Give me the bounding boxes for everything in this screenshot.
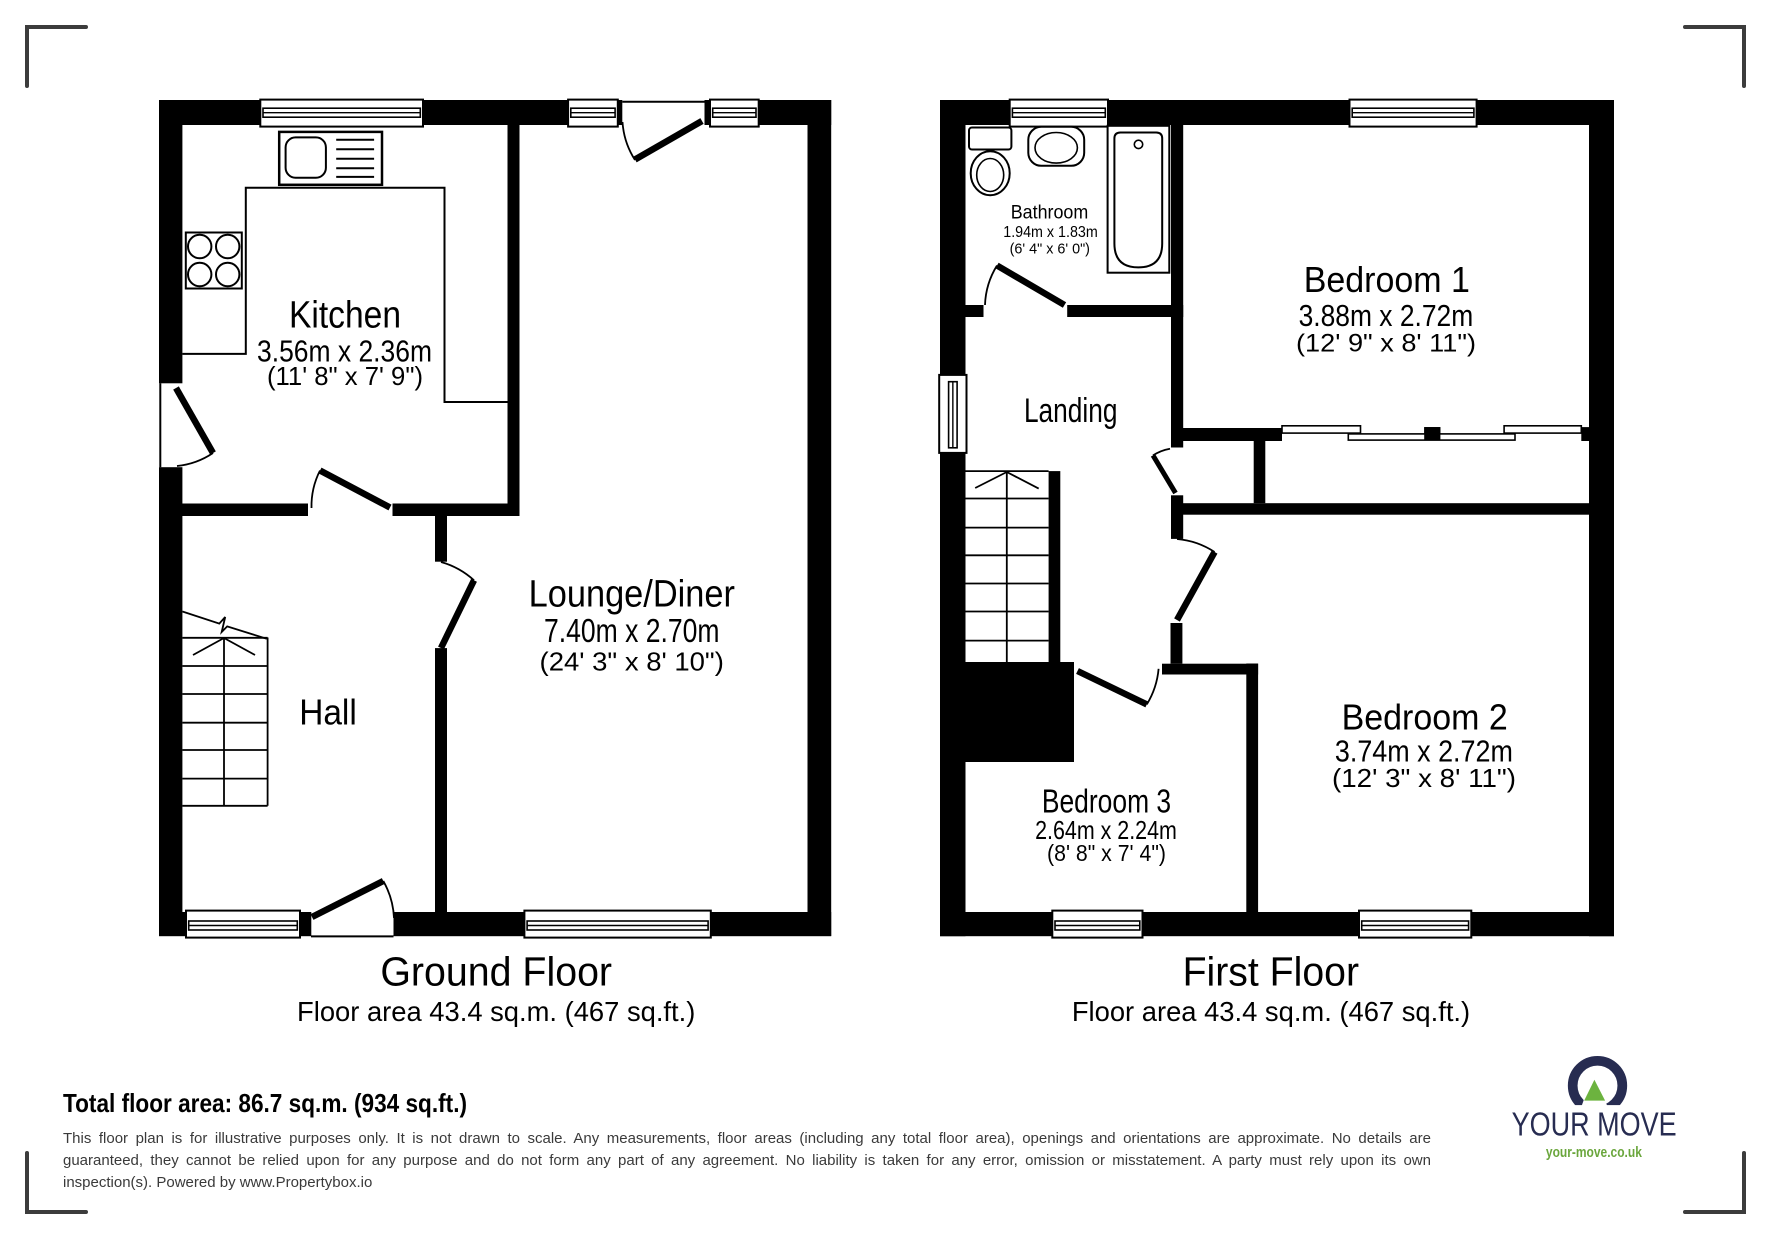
svg-text:First Floor: First Floor: [1183, 949, 1359, 995]
svg-text:(12' 3" x 8' 11"): (12' 3" x 8' 11"): [1332, 763, 1516, 793]
svg-text:Bedroom 2: Bedroom 2: [1342, 697, 1508, 738]
svg-text:Landing: Landing: [1024, 392, 1118, 430]
svg-text:Kitchen: Kitchen: [289, 295, 401, 337]
svg-text:7.40m x 2.70m: 7.40m x 2.70m: [544, 612, 720, 649]
svg-text:Ground Floor: Ground Floor: [380, 949, 612, 995]
svg-text:Bedroom 1: Bedroom 1: [1304, 259, 1470, 300]
svg-text:Total floor area: 86.7 sq.m. (: Total floor area: 86.7 sq.m. (934 sq.ft.…: [63, 1088, 467, 1118]
svg-text:3.88m x 2.72m: 3.88m x 2.72m: [1299, 298, 1474, 333]
svg-text:Lounge/Diner: Lounge/Diner: [529, 573, 736, 615]
svg-text:(8' 8" x 7' 4"): (8' 8" x 7' 4"): [1047, 840, 1166, 866]
svg-text:(12' 9" x 8' 11"): (12' 9" x 8' 11"): [1296, 329, 1476, 357]
svg-text:(24' 3" x 8' 10"): (24' 3" x 8' 10"): [540, 647, 724, 677]
svg-text:1.94m x 1.83m: 1.94m x 1.83m: [1003, 224, 1098, 241]
svg-text:(6' 4" x 6' 0"): (6' 4" x 6' 0"): [1010, 240, 1090, 257]
svg-text:YOUR MOVE: YOUR MOVE: [1512, 1105, 1677, 1142]
svg-text:(11' 8" x 7' 9"): (11' 8" x 7' 9"): [267, 361, 423, 391]
svg-text:Bathroom: Bathroom: [1011, 203, 1089, 224]
svg-text:your-move.co.uk: your-move.co.uk: [1546, 1144, 1643, 1161]
svg-text:Hall: Hall: [299, 691, 357, 732]
svg-text:Floor area 43.4 sq.m. (467 sq.: Floor area 43.4 sq.m. (467 sq.ft.): [1072, 996, 1470, 1027]
svg-text:Floor area 43.4 sq.m. (467 sq.: Floor area 43.4 sq.m. (467 sq.ft.): [297, 996, 695, 1027]
